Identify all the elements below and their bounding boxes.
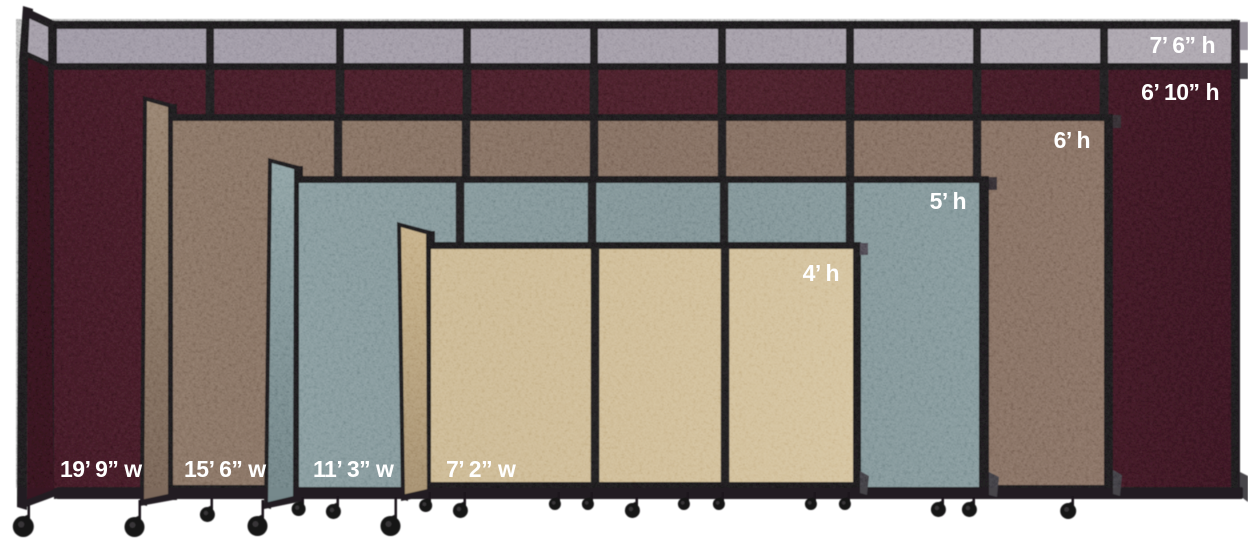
svg-text:6’ 10” h: 6’ 10” h <box>1141 79 1219 105</box>
svg-text:19’ 9” w: 19’ 9” w <box>60 456 142 482</box>
svg-text:7’ 6” h: 7’ 6” h <box>1149 32 1215 58</box>
svg-text:5’ h: 5’ h <box>930 188 966 214</box>
svg-text:11’ 3” w: 11’ 3” w <box>313 456 394 482</box>
svg-text:4’ h: 4’ h <box>803 260 839 286</box>
svg-text:6’ h: 6’ h <box>1054 127 1090 153</box>
svg-text:7’ 2” w: 7’ 2” w <box>446 456 516 482</box>
svg-text:15’ 6” w: 15’ 6” w <box>184 456 266 482</box>
